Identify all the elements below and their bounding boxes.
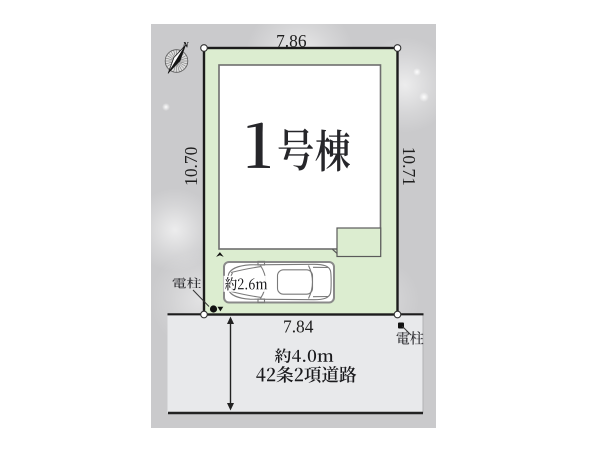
svg-text:10.71: 10.71: [399, 147, 419, 186]
svg-text:10.70: 10.70: [181, 146, 201, 185]
svg-text:7.86: 7.86: [276, 31, 307, 51]
svg-text:7.84: 7.84: [283, 316, 314, 336]
svg-text:N: N: [182, 41, 190, 50]
